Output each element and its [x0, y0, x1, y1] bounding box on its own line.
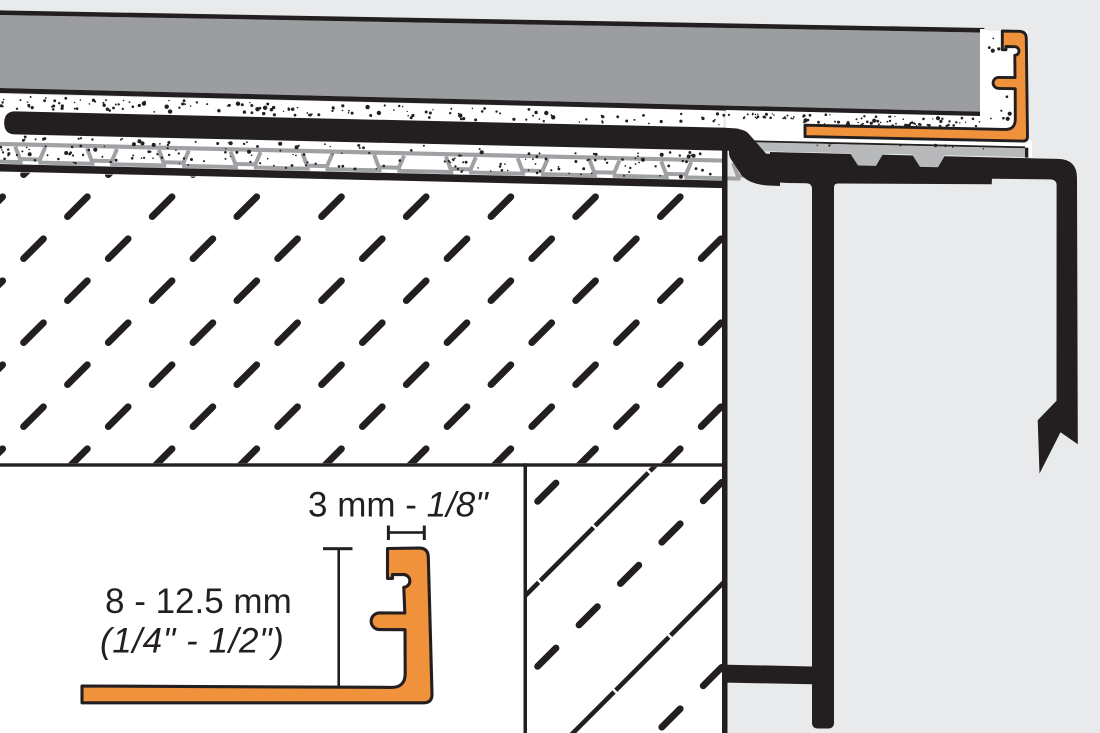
svg-text:8 - 12.5 mm: 8 - 12.5 mm: [105, 582, 292, 621]
svg-text:3 mm - 1/8": 3 mm - 1/8": [308, 486, 489, 525]
svg-text:(1/4" - 1/2"): (1/4" - 1/2"): [100, 622, 284, 661]
